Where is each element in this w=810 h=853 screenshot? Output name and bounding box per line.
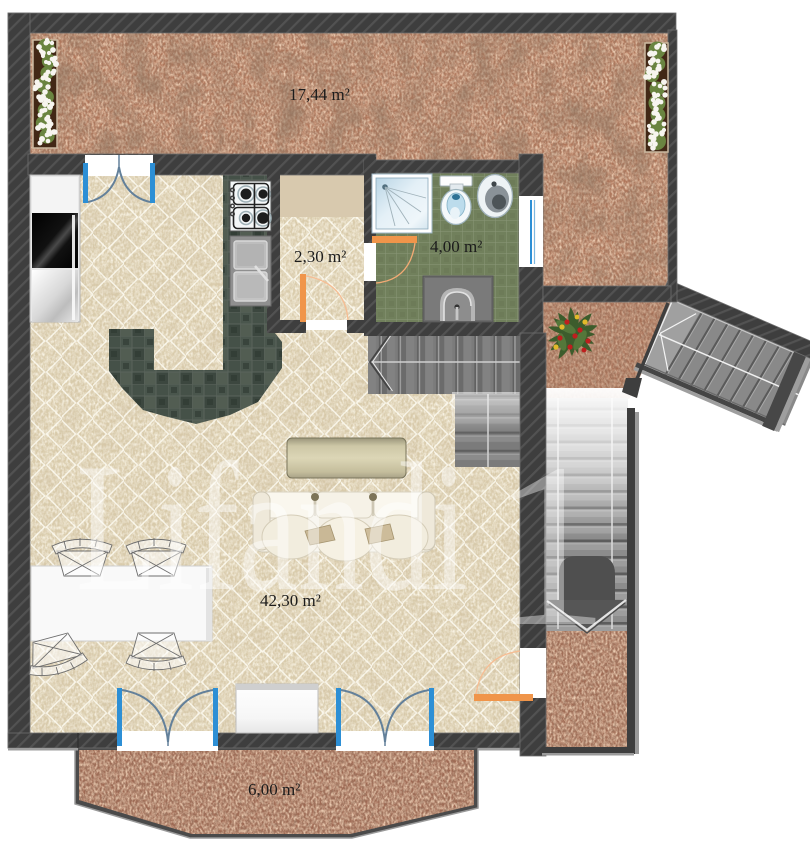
svg-text:6,00 m²: 6,00 m² (248, 780, 300, 799)
svg-text:1: 1 (492, 415, 610, 675)
svg-text:2,30 m²: 2,30 m² (294, 247, 346, 266)
svg-text:4,00 m²: 4,00 m² (430, 237, 482, 256)
svg-text:Lifandi: Lifandi (76, 425, 468, 629)
svg-text:17,44 m²: 17,44 m² (289, 85, 350, 104)
